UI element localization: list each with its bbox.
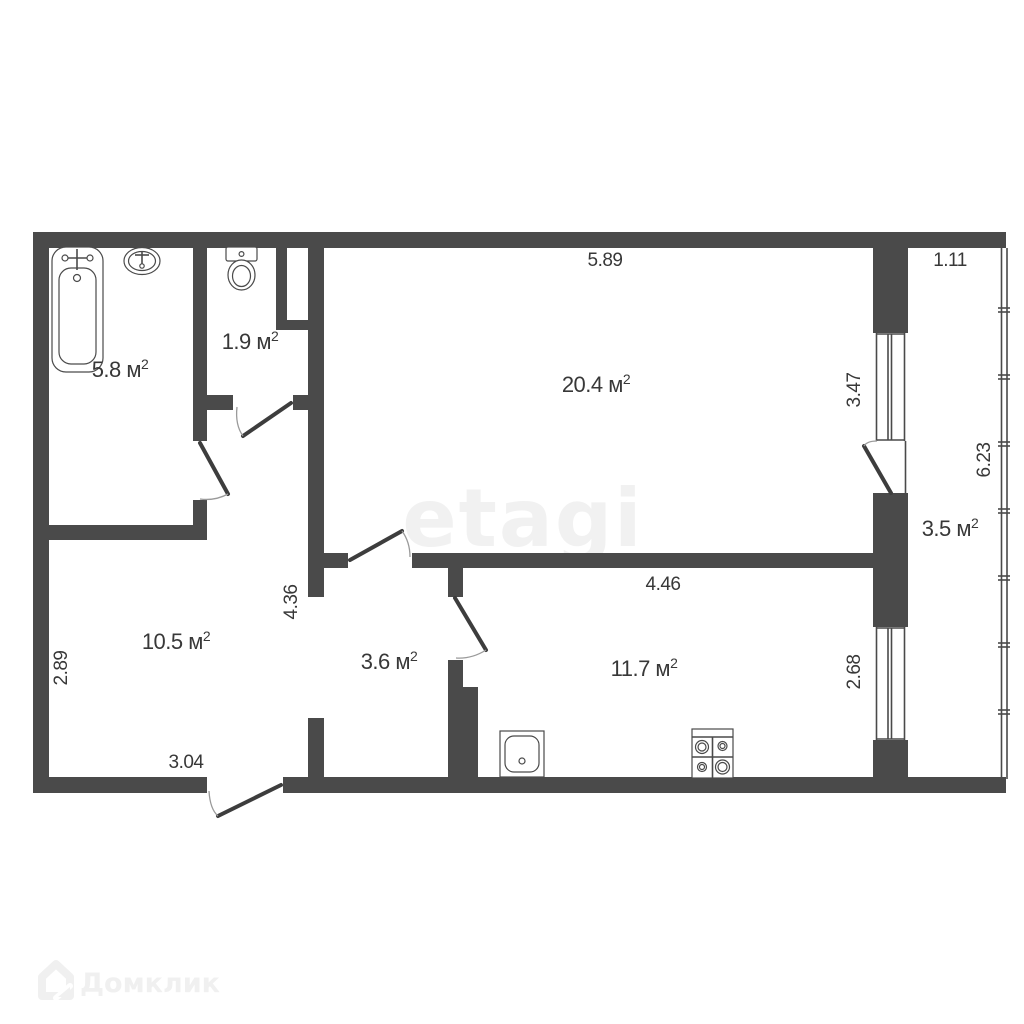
wall-toilet-bottom-left xyxy=(193,395,233,410)
wall-exterior-mid xyxy=(873,493,908,627)
wall-niche-left xyxy=(276,248,287,320)
domklik-label: Домклик xyxy=(80,968,220,999)
wall-living-bottom-stub xyxy=(324,553,348,568)
dim-hall-right-height: 4.36 xyxy=(281,585,302,620)
dim-kitchen-width: 4.46 xyxy=(646,574,681,595)
wall-exterior-bottom xyxy=(873,740,908,777)
bathtub-icon xyxy=(52,247,103,372)
floor-plan: etagi xyxy=(0,0,1024,1024)
dim-loggia-length: 6.23 xyxy=(974,443,995,478)
hallway-area-label: 10.5 м2 xyxy=(142,628,211,654)
wall-kitchen-mid xyxy=(448,660,463,687)
loggia-area-label: 3.5 м2 xyxy=(922,515,979,541)
dim-kitchen-window: 2.68 xyxy=(844,655,865,690)
kitchen-sink-icon xyxy=(500,731,544,777)
wall-left xyxy=(33,248,49,793)
wall-bath-toilet-upper xyxy=(193,248,207,441)
etagi-watermark: etagi xyxy=(402,472,643,565)
wall-bottom-left xyxy=(49,777,207,793)
wall-hall-lower xyxy=(308,718,324,777)
dim-loggia-top-width: 1.11 xyxy=(933,250,967,271)
wall-bathroom-bottom xyxy=(49,525,207,540)
wall-top xyxy=(33,232,1006,248)
bathroom-area-label: 5.8 м2 xyxy=(92,356,149,382)
toilet-icon xyxy=(226,247,257,290)
wall-kitchen-upper xyxy=(448,568,463,597)
dim-living-window: 3.47 xyxy=(844,373,865,408)
wall-living-bottom xyxy=(412,553,877,568)
sink-icon xyxy=(124,248,160,275)
corridor-area-label: 3.6 м2 xyxy=(361,648,418,674)
dim-living-top-width: 5.89 xyxy=(588,250,623,271)
living-room-area-label: 20.4 м2 xyxy=(562,371,631,397)
wall-kitchen-block xyxy=(448,687,478,777)
kitchen-area-label: 11.7 м2 xyxy=(611,655,678,681)
wall-exterior-top xyxy=(873,248,908,333)
dim-hall-left-height: 2.89 xyxy=(51,651,72,686)
toilet-area-label: 1.9 м2 xyxy=(222,328,279,354)
stove-icon xyxy=(692,729,733,778)
wall-toilet-bottom-right xyxy=(293,395,308,410)
wall-hall-upper xyxy=(308,248,324,597)
dim-hall-bottom-width: 3.04 xyxy=(169,752,205,773)
wall-bottom-main xyxy=(283,777,1006,793)
